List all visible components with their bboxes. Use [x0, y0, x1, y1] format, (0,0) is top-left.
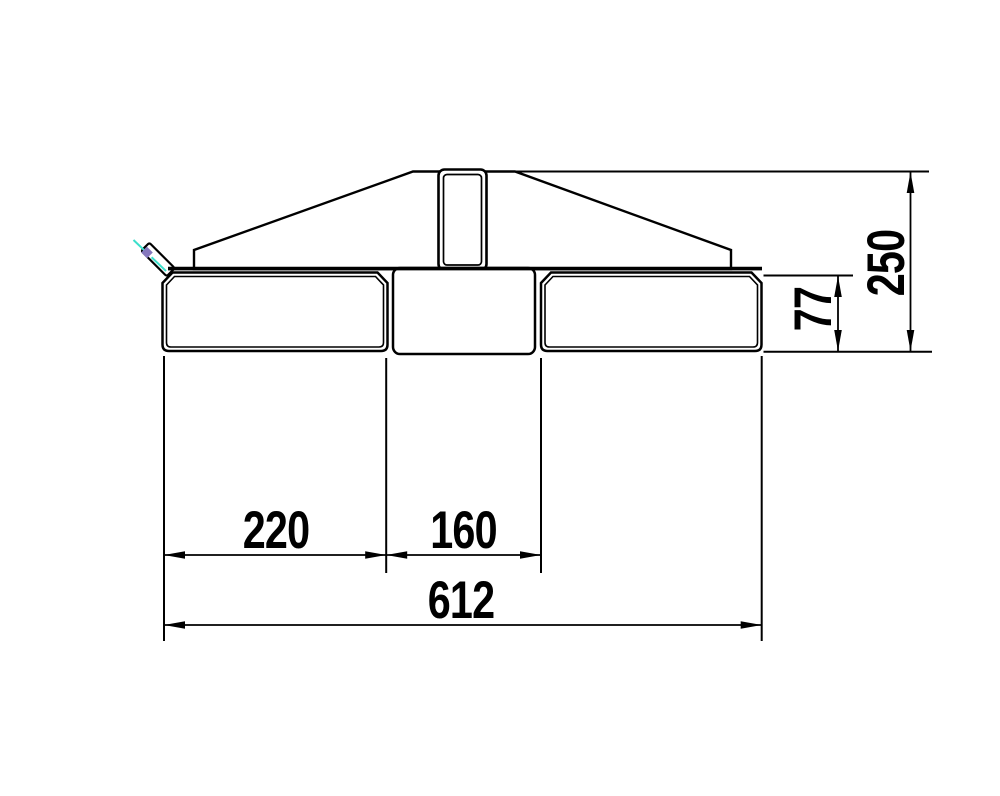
mount-block-outer: [439, 170, 487, 271]
dim-label-left-pocket-width: 220: [243, 501, 310, 560]
dim-label-center-section-width: 160: [430, 501, 497, 560]
dim-label-overall-width: 612: [428, 571, 495, 630]
technical-drawing-canvas: 220 160 612 77 250: [0, 0, 1000, 796]
arrowhead-77-down: [834, 330, 842, 351]
arrowhead-160-right: [520, 551, 541, 559]
dim-label-pocket-height: 77: [784, 287, 843, 331]
center-box-section: [393, 268, 535, 354]
left-fork-pocket-outer: [163, 273, 388, 352]
arrowhead-612-right: [741, 621, 762, 629]
right-fork-pocket-outer: [541, 273, 762, 352]
arrowhead-250-up: [907, 172, 915, 193]
load-arm-dimension-drawing: 220 160 612 77 250: [0, 0, 1000, 796]
arrowhead-250-down: [907, 330, 915, 351]
arrowhead-612-left: [164, 621, 185, 629]
arrowhead-220-right: [365, 551, 386, 559]
arrowhead-220-left: [164, 551, 185, 559]
arrowhead-160-left: [386, 551, 407, 559]
dim-label-overall-height: 250: [857, 230, 916, 297]
